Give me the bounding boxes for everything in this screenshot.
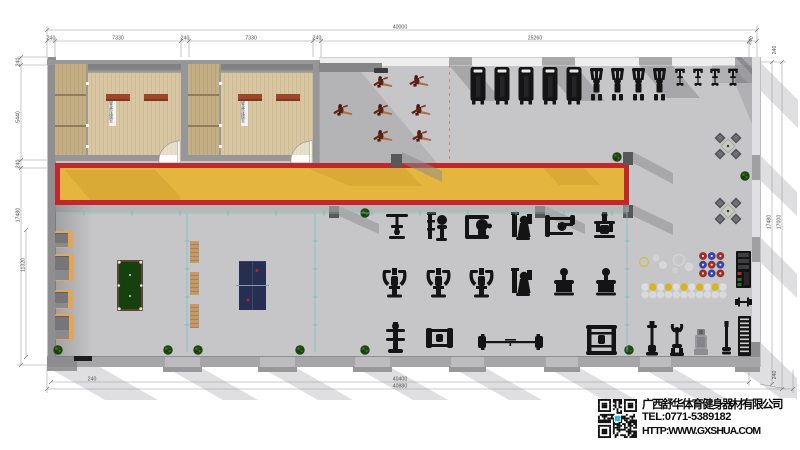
svg-text:17000: 17000 bbox=[777, 215, 783, 230]
svg-text:240: 240 bbox=[747, 35, 756, 45]
svg-text:11320: 11320 bbox=[21, 258, 27, 272]
svg-text:240: 240 bbox=[772, 46, 778, 55]
svg-text:240: 240 bbox=[16, 160, 22, 169]
svg-text:240: 240 bbox=[16, 58, 22, 67]
svg-text:240: 240 bbox=[88, 377, 97, 383]
svg-text:40000: 40000 bbox=[393, 25, 408, 31]
svg-text:17480: 17480 bbox=[16, 208, 22, 223]
svg-text:17480: 17480 bbox=[767, 215, 773, 230]
svg-text:240: 240 bbox=[772, 371, 778, 380]
svg-text:25260: 25260 bbox=[528, 36, 543, 42]
svg-text:240: 240 bbox=[313, 36, 322, 42]
svg-text:7330: 7330 bbox=[245, 36, 257, 42]
svg-text:7330: 7330 bbox=[112, 36, 124, 42]
svg-text:40880: 40880 bbox=[393, 384, 408, 390]
svg-text:40400: 40400 bbox=[393, 377, 408, 383]
svg-text:240: 240 bbox=[47, 36, 56, 42]
svg-text:5440: 5440 bbox=[16, 111, 22, 123]
svg-text:240: 240 bbox=[181, 36, 190, 42]
